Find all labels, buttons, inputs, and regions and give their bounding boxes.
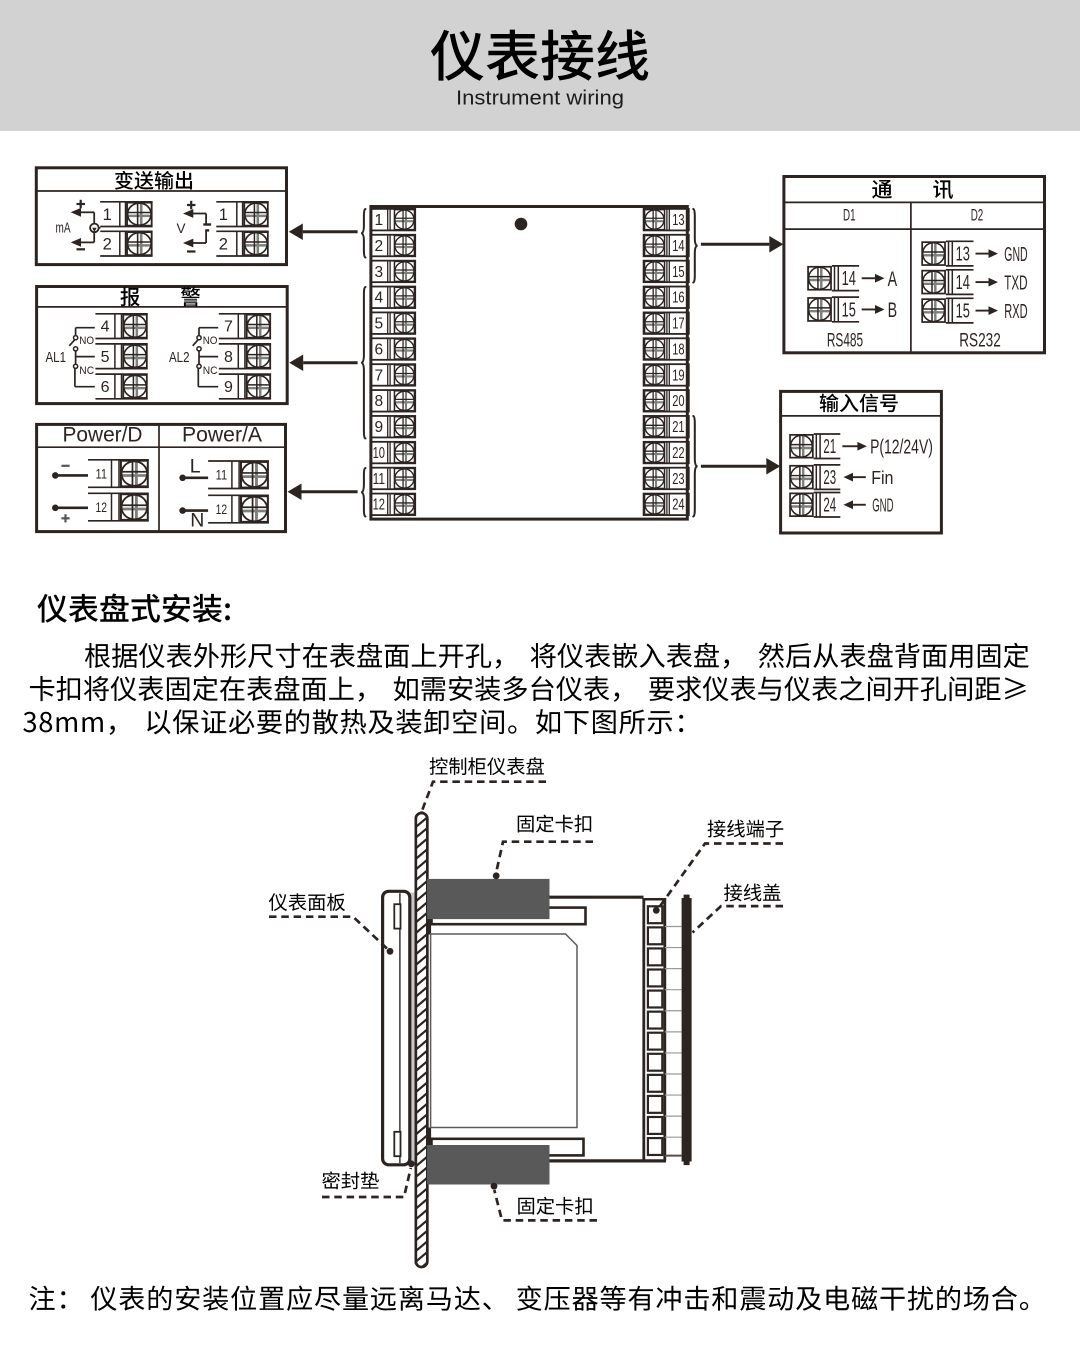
- svg-text:7: 7: [224, 319, 233, 336]
- svg-text:2: 2: [374, 238, 383, 255]
- svg-text:24: 24: [823, 495, 836, 517]
- svg-text:Power/D: Power/D: [63, 424, 143, 447]
- svg-text:4: 4: [374, 290, 383, 307]
- svg-text:7: 7: [374, 367, 383, 384]
- svg-text:17: 17: [672, 316, 684, 333]
- svg-text:21: 21: [823, 436, 836, 458]
- svg-text:D1: D1: [843, 206, 856, 225]
- svg-text:14: 14: [672, 238, 685, 255]
- svg-text:11: 11: [96, 465, 108, 481]
- svg-text:15: 15: [956, 301, 970, 323]
- svg-text:4: 4: [101, 319, 110, 336]
- svg-text:21: 21: [672, 419, 684, 436]
- svg-text:11: 11: [373, 471, 385, 488]
- svg-text:1: 1: [103, 206, 112, 224]
- svg-text:11: 11: [216, 467, 228, 483]
- svg-text:10: 10: [373, 445, 386, 462]
- svg-text:12: 12: [216, 501, 228, 517]
- svg-text:6: 6: [374, 341, 383, 358]
- svg-text:RS485: RS485: [827, 330, 863, 351]
- svg-text:8: 8: [374, 393, 383, 410]
- svg-text:23: 23: [823, 467, 836, 489]
- svg-text:A: A: [888, 268, 898, 291]
- svg-text:GND: GND: [1004, 243, 1027, 266]
- svg-text:5: 5: [101, 349, 110, 366]
- svg-text:23: 23: [672, 471, 684, 488]
- svg-text:N: N: [190, 510, 204, 532]
- svg-text:D2: D2: [971, 206, 984, 225]
- svg-text:2: 2: [219, 235, 228, 253]
- svg-text:8: 8: [224, 349, 233, 366]
- svg-text:16: 16: [672, 290, 684, 307]
- svg-text:NO: NO: [203, 335, 218, 347]
- svg-text:Instrument wiring: Instrument wiring: [456, 88, 624, 110]
- svg-text:V: V: [177, 221, 186, 236]
- svg-text:9: 9: [224, 379, 233, 396]
- svg-text:L: L: [190, 456, 201, 478]
- svg-text:RS232: RS232: [959, 330, 1001, 351]
- svg-text:9: 9: [374, 419, 383, 436]
- svg-text:13: 13: [956, 244, 970, 266]
- svg-text:15: 15: [672, 264, 684, 281]
- svg-text:TXD: TXD: [1004, 271, 1027, 294]
- svg-text:RXD: RXD: [1004, 300, 1027, 323]
- svg-text:13: 13: [672, 212, 684, 229]
- svg-text:NO: NO: [79, 335, 94, 347]
- svg-text:P(12/24V): P(12/24V): [870, 436, 933, 458]
- svg-text:15: 15: [842, 299, 856, 321]
- svg-text:20: 20: [672, 393, 685, 410]
- svg-text:24: 24: [672, 497, 685, 514]
- svg-text:AL1: AL1: [46, 349, 67, 366]
- svg-text:Power/A: Power/A: [182, 424, 262, 447]
- svg-text:22: 22: [672, 445, 684, 462]
- svg-text:Fin: Fin: [871, 467, 893, 488]
- svg-text:3: 3: [374, 264, 383, 281]
- svg-text:NC: NC: [203, 365, 218, 377]
- svg-text:AL2: AL2: [169, 349, 190, 366]
- svg-text:6: 6: [101, 379, 110, 396]
- svg-text:GND: GND: [872, 494, 893, 515]
- svg-text:14: 14: [842, 268, 856, 290]
- svg-text:B: B: [888, 299, 898, 322]
- svg-text:1: 1: [219, 206, 228, 224]
- svg-text:12: 12: [373, 497, 385, 514]
- svg-text:12: 12: [96, 499, 108, 515]
- svg-text:2: 2: [103, 235, 112, 253]
- svg-text:1: 1: [374, 212, 383, 229]
- svg-text:5: 5: [374, 316, 383, 333]
- svg-text:18: 18: [672, 341, 684, 358]
- svg-text:19: 19: [672, 367, 684, 384]
- svg-text:mA: mA: [56, 221, 71, 237]
- svg-text:NC: NC: [79, 365, 94, 377]
- svg-text:14: 14: [956, 272, 970, 294]
